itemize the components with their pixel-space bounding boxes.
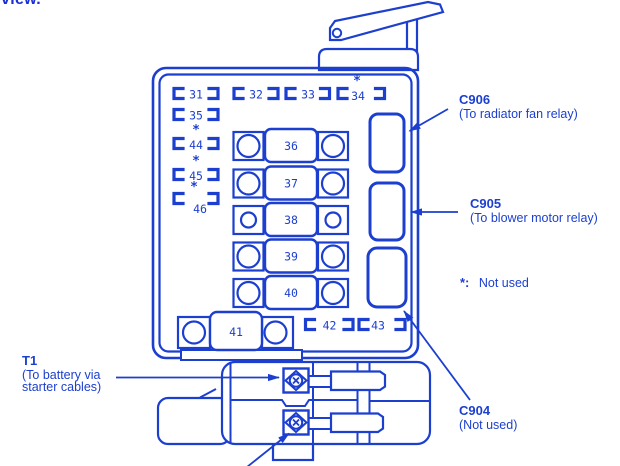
fuse-box-diagram: 31 32 33 * 34 35 * 44: [0, 0, 620, 466]
fuse-clip-right: [396, 320, 405, 330]
legend-note: *: Not used: [460, 274, 529, 291]
fuse-clip-right: [209, 139, 218, 149]
fuse-number: 36: [284, 139, 298, 153]
lever-hook-notch: [333, 29, 341, 37]
fuse-clip-right: [209, 170, 218, 180]
fuse-number: 31: [189, 88, 203, 102]
fuse-46: * 46: [174, 180, 218, 216]
fuse-number: 42: [323, 319, 337, 333]
fuse-45: * 45: [174, 154, 218, 183]
fuse-number: 39: [284, 250, 298, 264]
fuse-38: 38: [234, 203, 349, 236]
fuse-41: 41: [178, 312, 293, 350]
fuse-number: 33: [301, 88, 315, 102]
c906-description: (To radiator fan relay): [459, 107, 578, 121]
c904-code: C904: [459, 403, 491, 418]
fuse-not-used-star: *: [192, 123, 200, 138]
fuse-socket-left: [234, 206, 264, 234]
battery-terminal-bolt-lower: [284, 411, 309, 435]
relay-socket-c905: [370, 183, 404, 240]
fuse-clip-right: [344, 320, 353, 330]
fuse-number: 37: [284, 177, 298, 191]
fuse-clip-left: [359, 320, 368, 330]
fuse-number: 43: [371, 319, 385, 333]
battery-cable-lug-lower: [331, 414, 383, 433]
housing-body: [222, 362, 430, 444]
fuse-clip-left: [306, 320, 315, 330]
fuse-clip-left: [234, 89, 243, 99]
legend-star-prefix: *:: [460, 275, 469, 290]
fuse-clip-left: [174, 110, 183, 120]
fuse-43: 43: [359, 319, 405, 333]
fuse-clip-left: [174, 89, 183, 99]
fuse-42: 42: [306, 319, 354, 333]
fuse-clip-left: [174, 139, 183, 149]
latch-assembly: [319, 2, 443, 70]
battery-cable-lug-upper: [331, 372, 385, 391]
latch-lever: [330, 2, 443, 40]
fuse-not-used-star: *: [190, 180, 198, 195]
fuse-44: * 44: [174, 123, 218, 152]
fuse-number: 34: [351, 89, 365, 103]
left-tab-notch: [200, 389, 216, 398]
relay-socket-c904: [368, 248, 406, 307]
fuse-35: 35: [174, 109, 218, 123]
bottom-tab: [273, 443, 313, 460]
c906-arrow: [410, 109, 449, 131]
fuse-36: 36: [234, 129, 349, 162]
fuse-number: 41: [229, 325, 243, 339]
fuse-34: * 34: [338, 74, 385, 103]
terminal-stem-upper: [307, 376, 331, 387]
fuse-number: 40: [284, 286, 298, 300]
fuse-33: 33: [286, 88, 330, 102]
fuse-37: 37: [234, 167, 349, 200]
fuse-39: 39: [234, 240, 349, 273]
battery-terminal-bolt-upper: [284, 369, 309, 393]
t1-description-line2: starter cables): [22, 380, 101, 394]
fuse-number: 35: [189, 109, 203, 123]
fuse-box-diagram-page: view.: [0, 0, 620, 466]
c904-description: (Not used): [459, 418, 517, 432]
c905-description: (To blower motor relay): [470, 211, 598, 225]
fuse-clip-left: [286, 89, 295, 99]
fuse-clip-left: [174, 170, 183, 180]
fuse-clip-right: [209, 194, 218, 204]
left-tab: [158, 398, 230, 444]
t1-code: T1: [22, 353, 37, 368]
fuse-number: 32: [249, 88, 263, 102]
fuse-clip-left: [174, 194, 183, 204]
fuse-clip-right: [209, 110, 218, 120]
fuse-clip-left: [338, 89, 347, 99]
c906-code: C906: [459, 92, 490, 107]
fuse-clip-right: [209, 89, 218, 99]
fuse-socket-right: [318, 206, 348, 234]
fuse-clip-right: [269, 89, 278, 99]
fuse-number: 46: [193, 202, 207, 216]
bottom-strip: [181, 350, 302, 360]
fuse-number: 44: [189, 138, 203, 152]
fuse-40: 40: [234, 276, 349, 309]
fuse-not-used-star: *: [353, 74, 361, 89]
fuse-number: 38: [284, 213, 298, 227]
terminal-stem-lower: [307, 418, 331, 429]
fuse-32: 32: [234, 88, 278, 102]
fuse-clip-right: [321, 89, 330, 99]
fuse-clip-right: [376, 89, 385, 99]
relay-socket-c906: [370, 114, 404, 172]
fuse-31: 31: [174, 88, 218, 102]
c905-code: C905: [470, 196, 501, 211]
fuse-not-used-star: *: [192, 154, 200, 169]
legend-text: Not used: [479, 276, 529, 290]
